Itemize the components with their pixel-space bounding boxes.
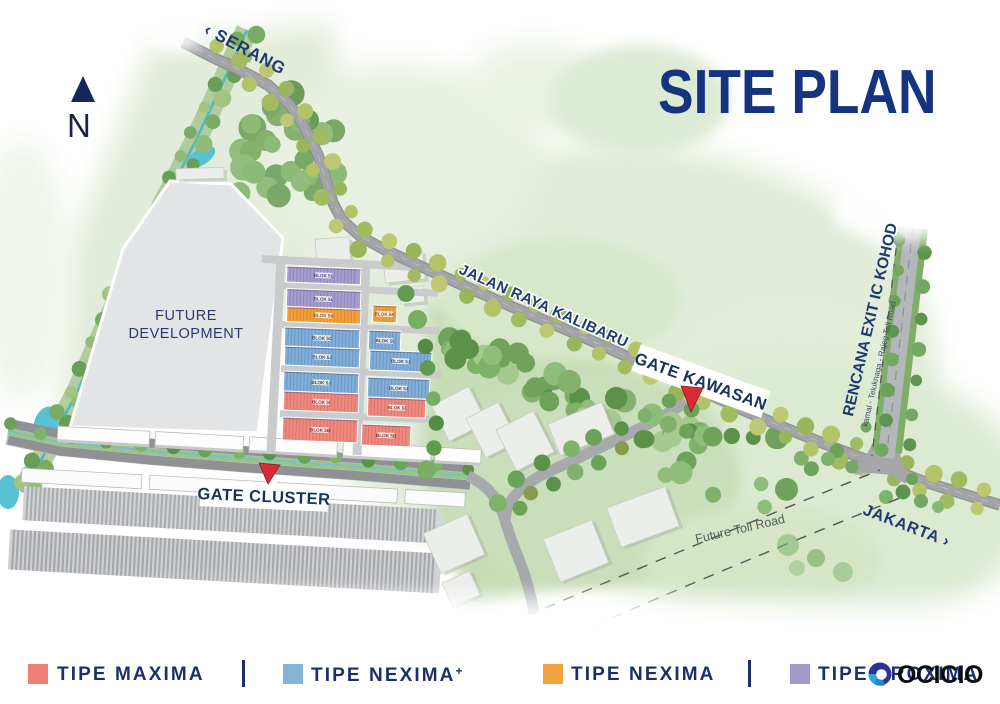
svg-text:BLOK 5J: BLOK 5J [391,359,411,365]
svg-text:DEVELOPMENT: DEVELOPMENT [128,326,243,342]
svg-text:BLOK 5J: BLOK 5J [389,386,409,392]
svg-text:FUTURE: FUTURE [155,308,217,324]
svg-text:BLOK 5I: BLOK 5I [387,405,405,411]
svg-text:BLOK 5C: BLOK 5C [312,335,333,341]
svg-text:BLOK 5L: BLOK 5L [314,273,334,279]
svg-text:BLOK 5K: BLOK 5K [374,311,395,317]
svg-text:BLOK 5I: BLOK 5I [312,399,330,405]
svg-text:BLOK 5J: BLOK 5J [312,354,332,360]
svg-text:BLOK 5B: BLOK 5B [376,433,397,439]
svg-text:BLOK 5L: BLOK 5L [314,296,334,302]
svg-text:BLOK 5I: BLOK 5I [375,338,393,344]
svg-text:BLOK 5J: BLOK 5J [311,380,331,386]
svg-text:BLOK 5B: BLOK 5B [310,427,331,433]
svg-text:BLOK 5K: BLOK 5K [313,313,334,319]
svg-text:N: N [67,107,91,144]
